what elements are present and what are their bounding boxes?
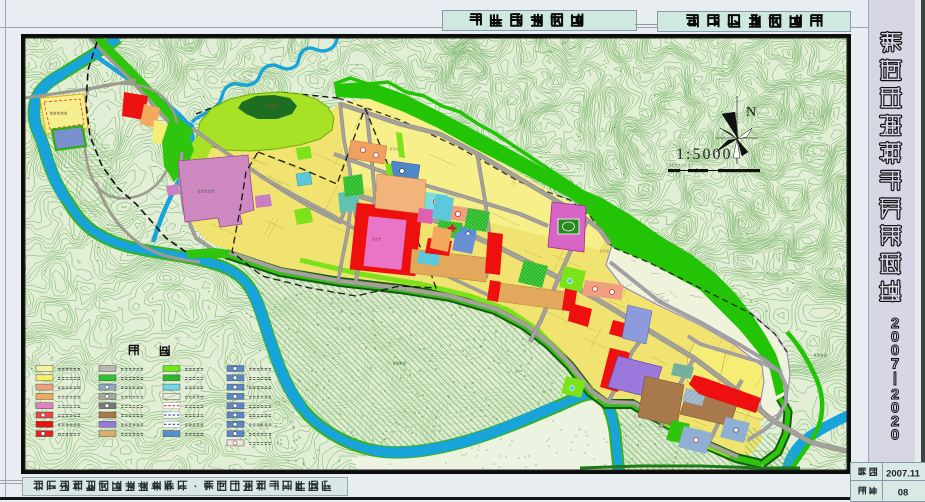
svg-text:0: 0 — [891, 427, 899, 444]
svg-text:|: | — [893, 369, 897, 385]
svg-text:2007.11: 2007.11 — [886, 469, 921, 480]
svg-text:08: 08 — [898, 488, 909, 499]
svg-text:1:5000: 1:5000 — [676, 146, 732, 163]
svg-text:N: N — [746, 105, 756, 120]
